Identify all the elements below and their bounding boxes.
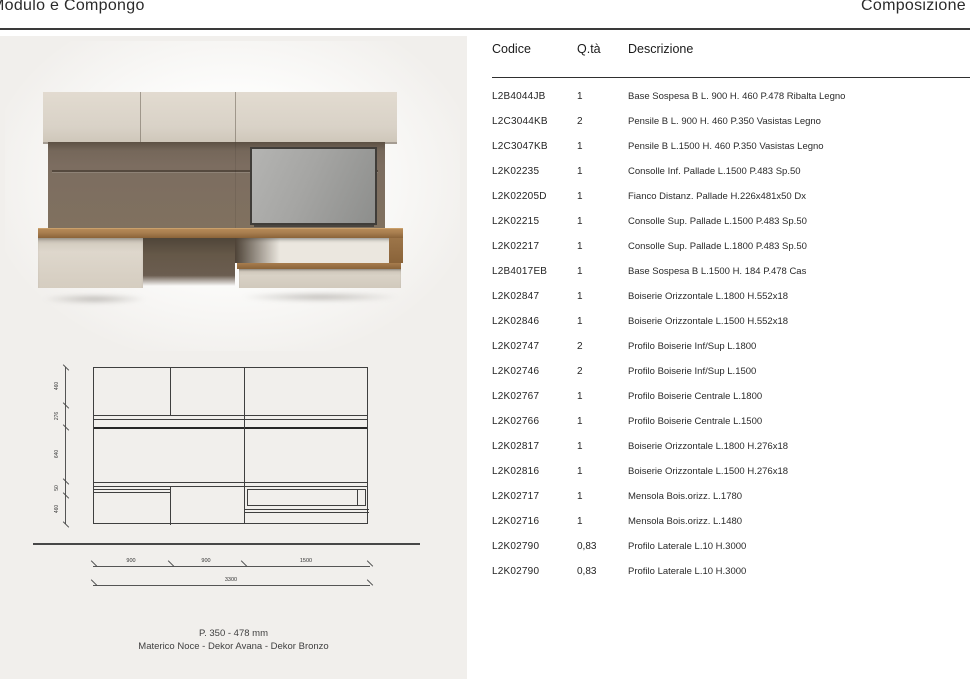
drawing-line — [357, 489, 358, 506]
drawing-line — [94, 486, 367, 487]
part-desc: Mensola Bois.orizz. L.1480 — [628, 516, 742, 527]
open-niche — [235, 238, 403, 263]
part-code: L2K02205D — [492, 191, 547, 202]
part-qty: 1 — [577, 191, 583, 202]
part-desc: Mensola Bois.orizz. L.1780 — [628, 491, 742, 502]
part-code: L2K02846 — [492, 316, 539, 327]
page-title: Modulo e Compongo — [0, 0, 145, 15]
niche-side-panel — [389, 238, 403, 263]
dim-tick — [63, 402, 69, 408]
part-code: L2C3047KB — [492, 141, 548, 152]
part-qty: 1 — [577, 141, 583, 152]
part-desc: Profilo Boiserie Centrale L.1500 — [628, 416, 762, 427]
width-dim-label: 1500 — [300, 558, 312, 564]
boiserie-seam — [235, 142, 236, 228]
product-panel: 460 276 640 50 460 900 900 1500 3300 P. … — [0, 36, 467, 679]
table-row: L2K02746 2 Profilo Boiserie Inf/Sup L.15… — [492, 360, 970, 385]
table-row: L2C3044KB 2 Pensile B L. 900 H. 460 P.35… — [492, 110, 970, 135]
cabinet-divider — [235, 92, 236, 142]
width-dim-label: 900 — [201, 558, 210, 564]
parts-table-body: L2B4044JB 1 Base Sospesa B L. 900 H. 460… — [492, 85, 970, 585]
part-code: L2K02746 — [492, 366, 539, 377]
part-qty: 1 — [577, 291, 583, 302]
part-desc: Fianco Distanz. Pallade H.226x481x50 Dx — [628, 191, 806, 202]
dim-tick — [63, 492, 69, 498]
part-desc: Pensile B L. 900 H. 460 P.350 Vasistas L… — [628, 116, 821, 127]
part-qty: 1 — [577, 91, 583, 102]
part-desc: Boiserie Orizzontale L.1500 H.552x18 — [628, 316, 788, 327]
part-qty: 1 — [577, 241, 583, 252]
part-desc: Base Sospesa B L. 900 H. 460 P.478 Ribal… — [628, 91, 845, 102]
part-qty: 1 — [577, 516, 583, 527]
parts-table: Codice Q.tà Descrizione L2B4044JB 1 Base… — [492, 36, 970, 679]
part-code: L2K02747 — [492, 341, 539, 352]
part-desc: Boiserie Orizzontale L.1800 H.552x18 — [628, 291, 788, 302]
part-qty: 1 — [577, 391, 583, 402]
table-row: L2K02747 2 Profilo Boiserie Inf/Sup L.18… — [492, 335, 970, 360]
part-code: L2K02716 — [492, 516, 539, 527]
niche-shadow — [235, 238, 280, 263]
drawing-line — [94, 419, 367, 420]
part-code: L2K02217 — [492, 241, 539, 252]
part-code: L2K02766 — [492, 416, 539, 427]
table-row: L2K02235 1 Consolle Inf. Pallade L.1500 … — [492, 160, 970, 185]
composition-title: Composizione — [861, 0, 966, 15]
part-code: L2C3044KB — [492, 116, 548, 127]
part-code: L2K02816 — [492, 466, 539, 477]
drawing-line — [244, 512, 369, 513]
column-header-codice: Codice — [492, 42, 531, 56]
part-code: L2K02767 — [492, 391, 539, 402]
table-header-rule — [492, 77, 970, 78]
height-dim-label: 460 — [54, 505, 60, 513]
drawing-line — [94, 415, 367, 416]
table-row: L2K02766 1 Profilo Boiserie Centrale L.1… — [492, 410, 970, 435]
height-dim-line — [65, 367, 66, 524]
caption: P. 350 - 478 mm Materico Noce - Dekor Av… — [0, 627, 467, 653]
part-code: L2K02235 — [492, 166, 539, 177]
table-row: L2K02205D 1 Fianco Distanz. Pallade H.22… — [492, 185, 970, 210]
width-dim-line — [93, 566, 370, 567]
part-desc: Profilo Laterale L.10 H.3000 — [628, 541, 746, 552]
open-compartment — [143, 238, 235, 286]
drawing-line — [170, 368, 171, 415]
part-desc: Boiserie Orizzontale L.1800 H.276x18 — [628, 441, 788, 452]
drawing-line — [94, 427, 367, 429]
part-qty: 1 — [577, 266, 583, 277]
table-row: L2B4017EB 1 Base Sospesa B L.1500 H. 184… — [492, 260, 970, 285]
height-dim-label: 50 — [54, 485, 60, 491]
width-dim-label: 900 — [126, 558, 135, 564]
table-row: L2K02717 1 Mensola Bois.orizz. L.1780 — [492, 485, 970, 510]
table-row: L2B4044JB 1 Base Sospesa B L. 900 H. 460… — [492, 85, 970, 110]
part-qty: 1 — [577, 166, 583, 177]
part-code: L2B4017EB — [492, 266, 547, 277]
part-code: L2K02790 — [492, 566, 539, 577]
part-qty: 1 — [577, 441, 583, 452]
table-row: L2K02790 0,83 Profilo Laterale L.10 H.30… — [492, 535, 970, 560]
part-desc: Boiserie Orizzontale L.1500 H.276x18 — [628, 466, 788, 477]
base-cabinet-left — [38, 238, 143, 288]
drawing-line — [94, 489, 170, 490]
part-code: L2K02847 — [492, 291, 539, 302]
part-desc: Base Sospesa B L.1500 H. 184 P.478 Cas — [628, 266, 806, 277]
dim-tick — [63, 521, 69, 527]
part-desc: Profilo Boiserie Centrale L.1800 — [628, 391, 762, 402]
part-desc: Profilo Laterale L.10 H.3000 — [628, 566, 746, 577]
caption-depth: P. 350 - 478 mm — [0, 627, 467, 640]
column-header-qty: Q.tà — [577, 42, 601, 56]
part-qty: 2 — [577, 116, 583, 127]
dim-tick — [63, 424, 69, 430]
part-qty: 0,83 — [577, 566, 596, 577]
header-rule — [0, 28, 970, 30]
floor-line — [33, 543, 420, 545]
table-row: L2K02846 1 Boiserie Orizzontale L.1500 H… — [492, 310, 970, 335]
part-desc: Consolle Sup. Pallade L.1800 P.483 Sp.50 — [628, 241, 807, 252]
drawing-line — [94, 482, 367, 483]
cabinet-divider — [140, 92, 141, 142]
part-desc: Consolle Sup. Pallade L.1500 P.483 Sp.50 — [628, 216, 807, 227]
drawing-line — [170, 486, 171, 525]
dim-tick — [63, 364, 69, 370]
part-code: L2K02717 — [492, 491, 539, 502]
part-code: L2K02215 — [492, 216, 539, 227]
tech-drawing — [93, 367, 368, 524]
table-row: L2K02816 1 Boiserie Orizzontale L.1500 H… — [492, 460, 970, 485]
part-qty: 2 — [577, 366, 583, 377]
part-qty: 1 — [577, 466, 583, 477]
caption-finishes: Materico Noce - Dekor Avana - Dekor Bron… — [0, 640, 467, 653]
part-qty: 1 — [577, 491, 583, 502]
drawing-niche — [247, 489, 366, 506]
total-width-dim-line — [93, 585, 370, 586]
table-row: L2K02215 1 Consolle Sup. Pallade L.1500 … — [492, 210, 970, 235]
drawing-line — [244, 509, 369, 510]
part-qty: 2 — [577, 341, 583, 352]
catalog-page: { "header": { "title_left": "Modulo e Co… — [0, 0, 970, 679]
table-row: L2K02716 1 Mensola Bois.orizz. L.1480 — [492, 510, 970, 535]
table-row: L2K02767 1 Profilo Boiserie Centrale L.1… — [492, 385, 970, 410]
floor-shadow — [42, 294, 147, 304]
console-top — [38, 228, 403, 238]
part-desc: Pensile B L.1500 H. 460 P.350 Vasistas L… — [628, 141, 824, 152]
table-row: L2K02790 0,83 Profilo Laterale L.10 H.30… — [492, 560, 970, 585]
drawing-line — [94, 492, 170, 493]
part-code: L2K02817 — [492, 441, 539, 452]
part-desc: Profilo Boiserie Inf/Sup L.1500 — [628, 366, 756, 377]
drawer-front — [239, 269, 401, 288]
tv-screen — [252, 149, 375, 223]
part-qty: 0,83 — [577, 541, 596, 552]
height-dim-label: 640 — [54, 450, 60, 458]
tv-stand — [254, 225, 374, 227]
height-dim-label: 276 — [54, 412, 60, 420]
height-dim-label: 460 — [54, 382, 60, 390]
product-photo — [0, 36, 467, 336]
table-row: L2K02217 1 Consolle Sup. Pallade L.1800 … — [492, 235, 970, 260]
part-qty: 1 — [577, 416, 583, 427]
floor-shadow — [240, 292, 400, 302]
wall-cabinets — [43, 92, 397, 144]
part-desc: Consolle Inf. Pallade L.1500 P.483 Sp.50 — [628, 166, 801, 177]
total-width-dim-label: 3300 — [225, 577, 237, 583]
part-desc: Profilo Boiserie Inf/Sup L.1800 — [628, 341, 756, 352]
tv — [250, 147, 377, 225]
table-row: L2K02817 1 Boiserie Orizzontale L.1800 H… — [492, 435, 970, 460]
table-row: L2C3047KB 1 Pensile B L.1500 H. 460 P.35… — [492, 135, 970, 160]
dim-tick — [63, 478, 69, 484]
table-row: L2K02847 1 Boiserie Orizzontale L.1800 H… — [492, 285, 970, 310]
part-code: L2K02790 — [492, 541, 539, 552]
column-header-descrizione: Descrizione — [628, 42, 693, 56]
drawing-line — [244, 368, 245, 523]
part-qty: 1 — [577, 216, 583, 227]
part-code: L2B4044JB — [492, 91, 546, 102]
part-qty: 1 — [577, 316, 583, 327]
